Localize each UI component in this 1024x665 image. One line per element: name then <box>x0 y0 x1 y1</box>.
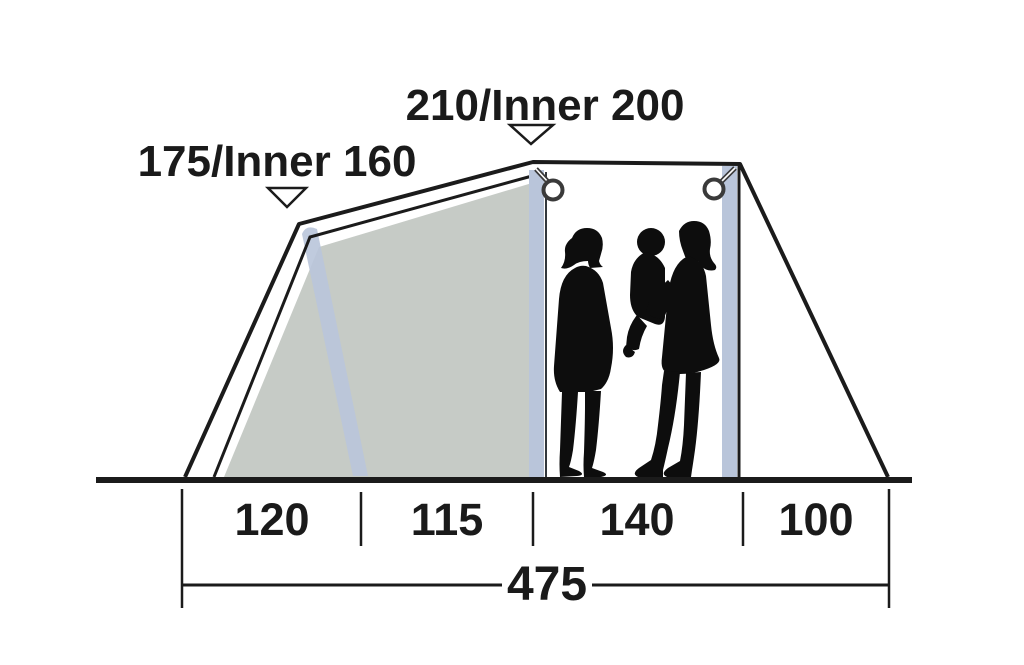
height-pointer-arrow-left <box>268 188 306 207</box>
people-silhouette <box>554 221 720 477</box>
floor-segment-label: 140 <box>599 494 674 545</box>
floor-segment-label: 100 <box>778 494 853 545</box>
tent-dimension-diagram: 175/Inner 160 210/Inner 200 120 115 140 … <box>0 0 1024 665</box>
diagram-canvas: 175/Inner 160 210/Inner 200 120 115 140 … <box>0 0 1024 665</box>
air-pole-front <box>529 170 544 477</box>
peak-height-label-main: 210/Inner 200 <box>406 81 685 130</box>
floor-segment-label: 115 <box>411 494 484 545</box>
air-pole-rear <box>722 166 737 477</box>
inner-tent-panel <box>224 183 532 477</box>
total-width-label: 475 <box>507 558 587 611</box>
peak-height-label-left: 175/Inner 160 <box>138 137 417 186</box>
floor-segment-label: 120 <box>234 494 309 545</box>
